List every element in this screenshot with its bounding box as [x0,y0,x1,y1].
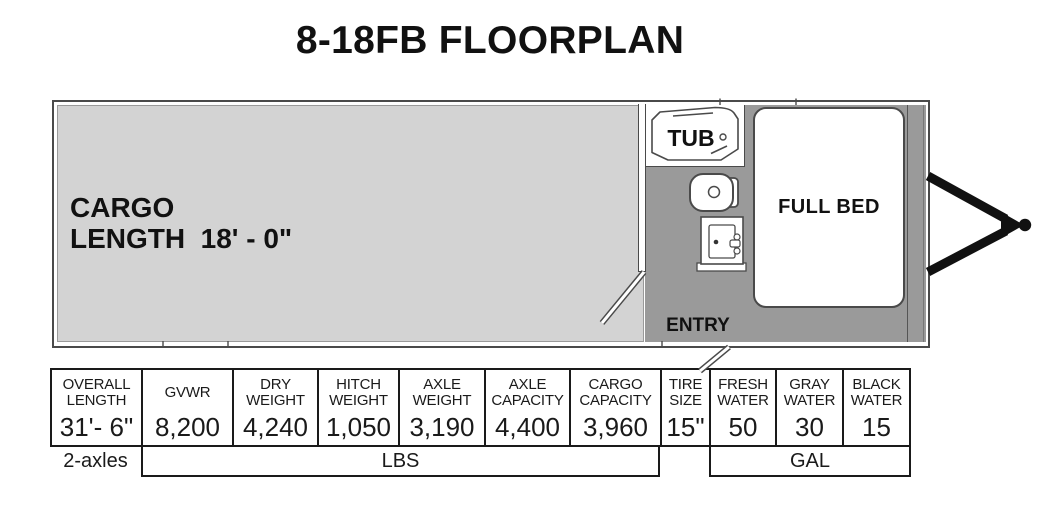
volumes-unit-cell: GAL [709,447,911,477]
spec-header: BLACK WATER [844,376,909,410]
weights-unit-cell: LBS [141,447,660,477]
spec-header: AXLE CAPACITY [486,376,569,410]
cargo-label-line2: LENGTH 18' - 0" [70,223,390,254]
front-wall [907,105,924,342]
spec-value: 31'- 6" [60,412,133,442]
spec-value: 15" [666,412,704,442]
spec-axle-capacity: AXLE CAPACITY 4,400 [484,370,569,445]
page: 8-18FB FLOORPLAN FULL BED CARGO LENGTH 1… [0,0,1058,526]
full-bed-label: FULL BED [778,196,880,219]
spec-black-water: BLACK WATER 15 [842,370,909,445]
spec-value: 4,400 [495,412,560,442]
floorplan-title: 8-18FB FLOORPLAN [0,19,980,63]
spec-header: TIRE SIZE [662,376,709,410]
spec-hitch-weight: HITCH WEIGHT 1,050 [317,370,398,445]
spec-table: OVERALL LENGTH 31'- 6" GVWR 8,200 DRY WE… [50,368,911,477]
spec-value: 4,240 [243,412,308,442]
spec-table-units-row: 2-axles LBS GAL [50,447,911,477]
spec-header: GVWR [165,376,211,410]
spec-value: 50 [729,412,758,442]
spec-value: 1,050 [326,412,391,442]
spec-header: GRAY WATER [777,376,842,410]
axles-label: 2-axles [50,447,141,477]
spec-value: 30 [795,412,824,442]
spec-axle-weight: AXLE WEIGHT 3,190 [398,370,484,445]
spec-header: HITCH WEIGHT [319,376,398,410]
spec-value: 15 [862,412,891,442]
cargo-label-line1: CARGO [70,192,390,223]
hitch-icon [928,176,1031,272]
spec-header: DRY WEIGHT [234,376,317,410]
spec-header: CARGO CAPACITY [571,376,660,410]
entry-label: ENTRY [660,315,736,337]
spec-header: FRESH WATER [711,376,775,410]
spec-gray-water: GRAY WATER 30 [775,370,842,445]
spec-gvwr: GVWR 8,200 [141,370,232,445]
spec-table-main-row: OVERALL LENGTH 31'- 6" GVWR 8,200 DRY WE… [50,368,911,447]
spec-fresh-water: FRESH WATER 50 [709,370,775,445]
units-row-gap [660,447,709,477]
spec-header: AXLE WEIGHT [400,376,484,410]
spec-cargo-capacity: CARGO CAPACITY 3,960 [569,370,660,445]
spec-dry-weight: DRY WEIGHT 4,240 [232,370,317,445]
spec-tire-size: TIRE SIZE 15" [660,370,709,445]
cargo-length-label: CARGO LENGTH 18' - 0" [70,192,390,254]
full-bed: FULL BED [753,107,905,308]
partition-wall [638,104,646,272]
spec-value: 3,960 [583,412,648,442]
spec-header: OVERALL LENGTH [52,376,141,410]
spec-value: 8,200 [155,412,220,442]
spec-value: 3,190 [409,412,474,442]
spec-overall-length: OVERALL LENGTH 31'- 6" [52,370,141,445]
tub-label: TUB [660,125,722,152]
